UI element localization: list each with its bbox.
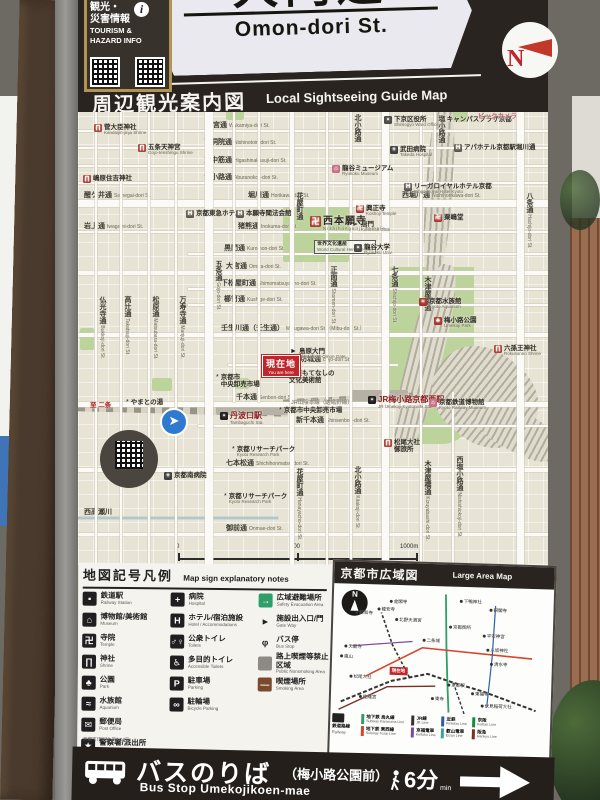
landmark-asterisk-icon: * (232, 446, 235, 453)
evacuation-icon: → (259, 593, 273, 607)
legend-item: ∞駐輪場Bicycle Parking (169, 697, 242, 714)
legend-item: φバス停Bus Stop (258, 634, 332, 651)
legend-column-3: →広域避難場所Safety Evacuation Area►施設出入口/門Gat… (258, 592, 333, 698)
map-poi: +武田病院Takeda Hospital (390, 146, 432, 158)
map-poi: *やまとの湯 (126, 399, 163, 406)
scale-tick (416, 553, 418, 561)
rail-legend-entry: 叡山電車Eizan Line (441, 728, 469, 739)
rail-line-note: JR山陰本線（嵯峨野線） (291, 400, 353, 406)
street-line (188, 288, 548, 290)
street-label: 岩上通Iwagami-dori St. (84, 221, 143, 231)
large-map-title-jp: 京都市広域図 (340, 564, 418, 583)
street-label: 正面通 Shomen-dori St. (328, 266, 338, 325)
legend-footnote: 京都市印刷物 第7-04号 (83, 737, 129, 743)
legend-item: ♂♀公衆トイレToilets (170, 634, 243, 651)
museum-icon: ⌂ (82, 613, 96, 627)
street-line (228, 364, 398, 366)
street-label: 新千本通Shinsenbon-dori St. (296, 415, 370, 425)
street-label: 北小路通 Kitakoji-dori St. (352, 466, 362, 529)
landmark-asterisk-icon: * (224, 493, 227, 500)
compass-letter: N (507, 46, 524, 73)
bus-stop-label-en: Bus Stop Umekojikoen-mae (140, 780, 311, 798)
aqua-icon: ≈ (419, 298, 427, 306)
temple-icon: 卍 (356, 205, 364, 213)
street-line (382, 112, 389, 565)
map-poi: H本願寺聞法会館 (236, 210, 292, 218)
background-wood-fence (570, 218, 600, 698)
railway-icon (332, 713, 344, 722)
sticker-jp-line2: 災害情報 (90, 14, 130, 26)
large-map-place: 銀閣寺 (489, 608, 507, 615)
sign-frame-left (55, 0, 78, 800)
street-label: 猪熊通Inokuma-dori St. (238, 221, 298, 231)
street-line (188, 304, 548, 306)
accessible-icon: ♿ (170, 656, 184, 670)
legend-item: 路上喫煙等禁止区域Public Nonsmoking Area (258, 655, 332, 672)
shrine-icon: ∏ (82, 655, 96, 669)
signboard: 大門通 Omon-dori St. 観光・ 災害情報 i TOURISM & H… (78, 0, 548, 800)
sticker-jp-line1: 観光・ (90, 2, 130, 14)
street-label: 下松屋町通Shimomatsuyacho-dori St. (221, 278, 317, 288)
walk-minutes: 6分 (404, 762, 439, 795)
you-are-here-badge: 現在地 You are here (262, 355, 300, 377)
street-label: 八条通 Hachijo-dori St. (524, 192, 534, 249)
street-label: 五条通 Gojo-dori St. (213, 260, 223, 310)
map-poi: ▪丹波口駅Tambaguchi Sta. (220, 412, 264, 426)
rail-legend-entry: 阪急Hankyu Line (472, 729, 500, 740)
large-map-place: 金閣寺 (390, 599, 408, 606)
hotel-icon: H (236, 210, 244, 218)
landmark-asterisk-icon: * (442, 116, 445, 123)
legend-column-1: ▪鉄道駅Railway Station⌂博物館/美術館Museum卍寺院Temp… (81, 591, 148, 760)
large-map-rail-legend: 鉄道路線 Railway 地下鉄 烏丸線Subway Karasuma Line… (331, 713, 548, 757)
hospital-icon: + (164, 472, 172, 480)
map-poi: 卍西本願寺Nishihonganji Temple (310, 216, 386, 232)
legend-item: ∏神社Shrine (82, 654, 147, 671)
map-poi: +京都南病院 (164, 472, 207, 480)
street-label: 西塩小路通 Nishishiokoji-dori St. (454, 456, 464, 538)
street-label: 花屋町通 (294, 192, 304, 220)
street-label: 七本松通Shichihonmatsu-dori St. (226, 458, 309, 468)
street-name-plate: 大門通 Omon-dori St. (149, 0, 474, 76)
shrine-icon: ∏ (494, 345, 502, 353)
street-line (258, 112, 260, 402)
street-label: 木津屋橋通 Kizuyabashi-dori St. (422, 460, 432, 541)
map-poi: *京都市中央卸売市場 (216, 374, 260, 388)
hotel-icon: H (454, 144, 462, 152)
large-map-you-are-here: 現在地 (390, 667, 408, 676)
large-map-place: 東寺 (431, 696, 444, 702)
large-map-place: 北野天満宮 (395, 617, 422, 624)
legend-item: +病院Hospital (171, 592, 244, 609)
shrine-icon: ∏ (94, 124, 102, 132)
map-poi: ♣梅小路公園Umekoji Park (434, 317, 477, 329)
legend-item: 卍寺院Temple (82, 633, 147, 650)
legend-item: ≈水族館Aquarium (81, 696, 146, 713)
map-legend: 地図記号凡例 Map sign explanatory notes ▪鉄道駅Ra… (81, 565, 333, 756)
street-line (205, 112, 213, 565)
legend-item: ✉郵便局Post Office (81, 717, 146, 734)
park-icon: ♣ (434, 317, 442, 325)
map-poi: ∏菅大臣神社Kandaijin-jinja Shrine (94, 124, 146, 136)
map-poi: ∏六孫王神社Rokusonno Shrine (494, 345, 541, 357)
street-line (326, 112, 328, 565)
rail-legend-entry: 近鉄Kintetsu Line (441, 716, 469, 727)
street-label: 北小路通 (352, 114, 362, 142)
map-poi: *京都リサーチパークKyoto Research Park (232, 446, 295, 458)
map-poi: ∏松尾大社御旅所 (384, 439, 420, 453)
parking-icon: P (170, 677, 184, 691)
legend-item: P駐車場Parking (170, 676, 243, 693)
rail-legend-entry: JR線JR Line (411, 715, 438, 726)
qr-code-icon (137, 59, 163, 85)
tourism-hazard-info-sticker: 観光・ 災害情報 i TOURISM & HAZARD INFO (84, 0, 172, 92)
rail-legend-head: 鉄道路線 Railway (331, 713, 358, 752)
large-map-place: 東福寺 (471, 691, 489, 698)
large-map-place: 京都駅 (447, 683, 465, 690)
univ-icon: • (354, 244, 362, 252)
street-label: 七条通 Shichijo-dori St. (389, 266, 399, 323)
guide-map: 現在地 You are here ➤ 0 500 1000m 徒歩約15分 ab… (78, 112, 548, 565)
map-poi: 至 二条 (90, 402, 111, 409)
legend-column-2: +病院HospitalHホテル/宿泊施設Hotel / Accommodatio… (169, 592, 243, 719)
street-label: 千本通Senbon-dori St. (236, 392, 294, 402)
large-map-place: 龍安寺 (377, 606, 395, 613)
street-label: 万寿寺通 Manjuji-dori St. (177, 296, 187, 359)
street-label: 御前通Onmae-dori St. (226, 523, 283, 533)
arrow-right-icon (460, 763, 531, 800)
hotel-icon: H (404, 183, 412, 191)
large-map-place: 清水寺 (490, 662, 508, 669)
green-block (226, 112, 244, 120)
bottom-panel-row: 地図記号凡例 Map sign explanatory notes ▪鉄道駅Ra… (77, 563, 549, 760)
street-label: 松原通 Matsubara-dori St. (150, 296, 160, 360)
foliage (548, 680, 600, 800)
sticker-en-line1: TOURISM & (87, 25, 169, 36)
legend-item: —喫煙場所Smoking Area (258, 676, 332, 693)
hospital-icon: + (171, 593, 185, 607)
map-poi: •龍谷大学Ryukoku Univ. (354, 244, 393, 256)
bicycle-icon: ∞ (169, 698, 183, 712)
legend-item: ▪鉄道駅Railway Station (83, 591, 148, 608)
map-poi: *京都市中央卸売市場 (279, 407, 342, 414)
compass-north-indicator: N (502, 22, 558, 78)
large-map-compass-letter: N (342, 589, 368, 600)
map-poi: *京都リサーチパークKyoto Research Park (224, 493, 287, 505)
sticker-en-line2: HAZARD INFO (87, 36, 169, 46)
rail-legend-column: 近鉄Kintetsu Line叡山電車Eizan Line (440, 716, 469, 755)
map-qr-badge (100, 430, 158, 488)
busstop-icon: φ (258, 635, 272, 649)
shrine-icon: ∏ (138, 144, 146, 152)
aqua-icon: ≈ (81, 697, 95, 711)
large-map-place: 天龍寺 (344, 643, 362, 650)
street-line (78, 517, 278, 519)
legend-item: →広域避難場所Safety Evacuation Area (259, 592, 333, 609)
legend-item: ♿多目的トイレAccessible Toilets (170, 655, 243, 672)
street-label: 油小路通Aburanokoji-dori St. (204, 172, 278, 182)
large-map-place: 八坂神社 (486, 648, 508, 655)
large-map-body: N 現在地 金閣寺仁和寺龍安寺北野天満宮下鴨神社銀閣寺京都御所二条城平安神宮八坂… (330, 583, 554, 719)
large-map-place: 平安神宮 (483, 634, 505, 641)
bus-stop-label-jp-sub: （梅小路公園前） (284, 763, 388, 784)
large-map-place: 伏見稲荷大社 (481, 704, 512, 711)
legend-title-jp: 地図記号凡例 (83, 565, 173, 585)
temple-icon: 卍 (82, 634, 96, 648)
rail-legend-entry: 京福電車Keifuku Line (411, 727, 438, 738)
map-poi: ⌂京都鉄道博物館Kyoto Railway Museum (429, 399, 486, 411)
qr-code-icon (115, 441, 143, 469)
navigation-cursor-icon: ➤ (160, 408, 188, 436)
bus-icon (84, 759, 127, 786)
landmark-asterisk-icon: * (126, 399, 129, 406)
toilet-icon: ♂♀ (170, 635, 184, 649)
green-block (152, 378, 172, 391)
street-label: 西高瀬川 (84, 507, 112, 517)
legend-item: Hホテル/宿泊施設Hotel / Accommodations (170, 613, 243, 630)
temple-icon: 卍 (434, 214, 442, 222)
rail-legend-column: JR線JR Line京福電車Keifuku Line (410, 715, 438, 754)
foliage (560, 170, 600, 230)
street-name-en: Omon-dori St. (150, 12, 473, 45)
gate-icon: ► (290, 348, 297, 355)
scale-label-end: 1000m (400, 544, 418, 550)
large-map-place: 桂離宮 (359, 694, 377, 701)
green-block (80, 328, 94, 350)
street-label: 仏光寺通 Bukkoji-dori St. (97, 296, 107, 359)
street-label: 花屋町通 Hanayacho-dori St. (294, 468, 304, 540)
sign-header: 大門通 Omon-dori St. 観光・ 災害情報 i TOURISM & H… (78, 0, 548, 112)
museum-icon: ⌂ (429, 399, 437, 407)
walking-person-icon (390, 770, 403, 794)
hotel-icon: H (186, 210, 194, 218)
station-icon: ▪ (220, 412, 228, 420)
train-icon: ▪ (83, 592, 97, 606)
guide-title-en: Local Sightseeing Guide Map (266, 87, 448, 106)
walking-time: 6分 min (390, 762, 452, 795)
large-map-place: 京都御所 (449, 625, 471, 632)
large-map-place: 二条城 (422, 638, 440, 645)
nosmoke-icon (258, 656, 272, 670)
office-icon: • (384, 116, 392, 124)
map-poi: ≈京都水族館Kyoto Aquarium (419, 298, 462, 310)
scale-tick (178, 553, 180, 561)
large-area-map-panel: 京都市広域図 Large Area Map N (327, 559, 557, 762)
shrine-icon: ∏ (83, 175, 91, 183)
scale-tick (297, 553, 299, 561)
info-icon: i (134, 2, 149, 17)
large-map-place: 嵐山 (340, 653, 353, 659)
gateway-icon: ► (258, 614, 272, 628)
rail-legend-entry: 地下鉄 烏丸線Subway Karasuma Line (361, 714, 409, 725)
street-label: 高辻通 Takatsuji-dori St. (122, 296, 132, 355)
map-poi: ⌂龍谷ミュージアムRyukoku Museum (332, 165, 393, 177)
map-poi: Hリーガロイヤルホテル京都Rihga Royal Hotel Kyoto (404, 183, 492, 195)
rail-legend-column: 京阪Keihan Line阪急Hankyu Line (472, 717, 500, 756)
large-map-title-en: Large Area Map (452, 571, 512, 582)
large-map-place: 松尾大社 (349, 674, 371, 681)
you-are-here-en: You are here (266, 370, 296, 375)
street-label: 東中筋通Higashinakasuji-dori St. (204, 155, 287, 165)
landmark-asterisk-icon: * (216, 374, 219, 381)
map-poi: ビックカメラ (478, 113, 517, 120)
large-map-place: 仁和寺 (355, 610, 373, 617)
post-icon: ✉ (81, 718, 95, 732)
legend-title-en: Map sign explanatory notes (183, 574, 288, 584)
hospital-icon: + (390, 146, 398, 154)
street-label: 西洞院通Nishinotoin-dori St. (204, 137, 276, 147)
park-icon: ♣ (82, 676, 96, 690)
street-line (517, 112, 524, 565)
street-label: 若宮通Wakamiya-dori St. (206, 120, 270, 130)
large-map-place: 下鴨神社 (460, 599, 482, 606)
shrine-icon: ∏ (384, 439, 392, 447)
map-poi: ∏嶋原住吉神社 (83, 175, 132, 183)
legend-item: ►施設出入口/門Gate Way (258, 613, 332, 630)
rail-legend-entry: 京阪Keihan Line (472, 717, 500, 728)
station-icon: ▪ (368, 396, 376, 404)
map-poi: Hアパホテル京都駅堀川通 (454, 144, 535, 152)
street-line (233, 112, 235, 402)
qr-code-icon (92, 59, 118, 85)
temple-icon: 卍 (310, 216, 321, 227)
museum-icon: ⌂ (332, 165, 340, 173)
legend-item: ♣公園Park (82, 675, 147, 692)
map-poi: 卍粟嶋堂 (434, 214, 464, 222)
photo-of-signboard: 壬生川西入ル町 大門通 Omon-dori St. 観光・ 災害情報 i (0, 0, 600, 800)
smoking-icon: — (258, 677, 272, 691)
legend-item: ⌂博物館/美術館Museum (82, 612, 147, 629)
rail-legend-entry: 地下鉄 東西線Subway Tozai Line (361, 726, 409, 737)
map-poi: H京都東急ホテル (186, 210, 242, 218)
landmark-asterisk-icon: * (279, 407, 282, 414)
rail-legend-head-en: Railway (332, 729, 358, 735)
map-poi: ∏五条天神宮Gojo-tenshingu Shrine (138, 144, 193, 156)
hotel-icon: H (170, 614, 184, 628)
you-are-here-jp: 現在地 (266, 357, 296, 370)
map-poi: •下京区役所Shimogyo Ward Office (384, 116, 439, 128)
rail-legend-column: 地下鉄 烏丸線Subway Karasuma Line地下鉄 東西線Subway… (360, 714, 408, 753)
walk-unit: min (440, 785, 451, 792)
